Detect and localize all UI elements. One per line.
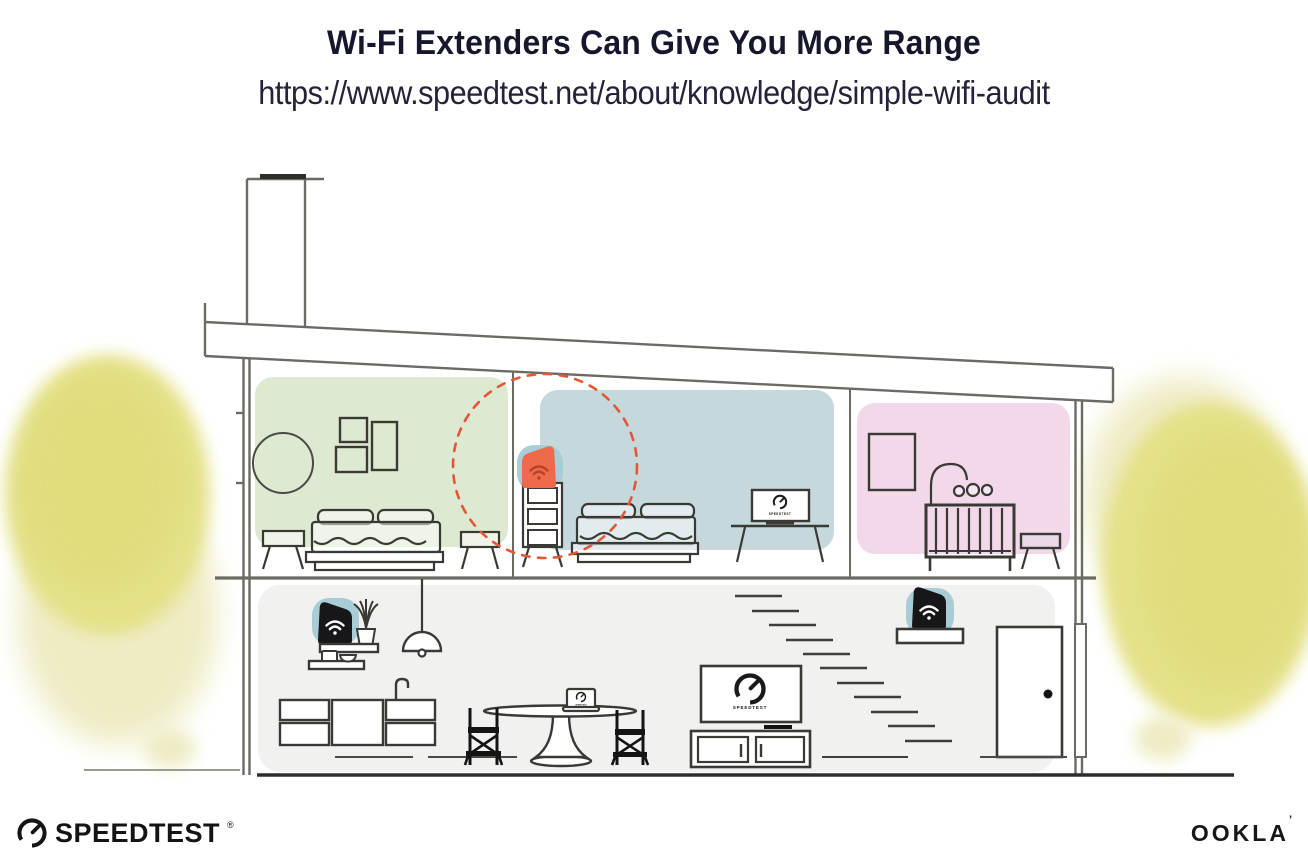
- bush-left: [6, 355, 218, 768]
- tv-console: [691, 731, 810, 767]
- laptop: SPEEDTEST: [563, 689, 599, 711]
- registered-mark: ®: [227, 820, 234, 830]
- chimney: [247, 177, 324, 329]
- dresser: [523, 483, 562, 567]
- speedtest-gauge-icon: [16, 817, 48, 849]
- bowl: [340, 655, 356, 662]
- header: Wi-Fi Extenders Can Give You More Range …: [0, 24, 1308, 112]
- tv-living-room: SPEEDTEST: [701, 666, 801, 729]
- ookla-logo-text: OOKLA: [1191, 820, 1289, 846]
- tv-living-screen-label: SPEEDTEST: [733, 705, 768, 710]
- ookla-logo: OOKLA’: [1191, 820, 1292, 847]
- bush-right: [1085, 377, 1308, 760]
- speedtest-logo: SPEEDTEST®: [16, 817, 234, 849]
- hall-shelf: [897, 629, 963, 643]
- house-illustration: SPEEDTEST: [0, 0, 1308, 861]
- source-url: https://www.speedtest.net/about/knowledg…: [46, 74, 1262, 112]
- ookla-trademark: ’: [1289, 814, 1292, 826]
- nightstand-right: [461, 532, 499, 569]
- nursery-pink-wall: [857, 403, 1070, 554]
- bed-blue-room: [572, 504, 698, 562]
- page-title: Wi-Fi Extenders Can Give You More Range: [39, 24, 1269, 63]
- door-knob: [1044, 690, 1053, 699]
- shelf-lower: [309, 661, 364, 669]
- nightstand-left: [263, 531, 304, 569]
- tv-bedroom-screen-label: SPEEDTEST: [769, 512, 792, 516]
- downspout: [1075, 624, 1086, 757]
- cup: [322, 651, 337, 661]
- speedtest-logo-text: SPEEDTEST: [55, 818, 220, 849]
